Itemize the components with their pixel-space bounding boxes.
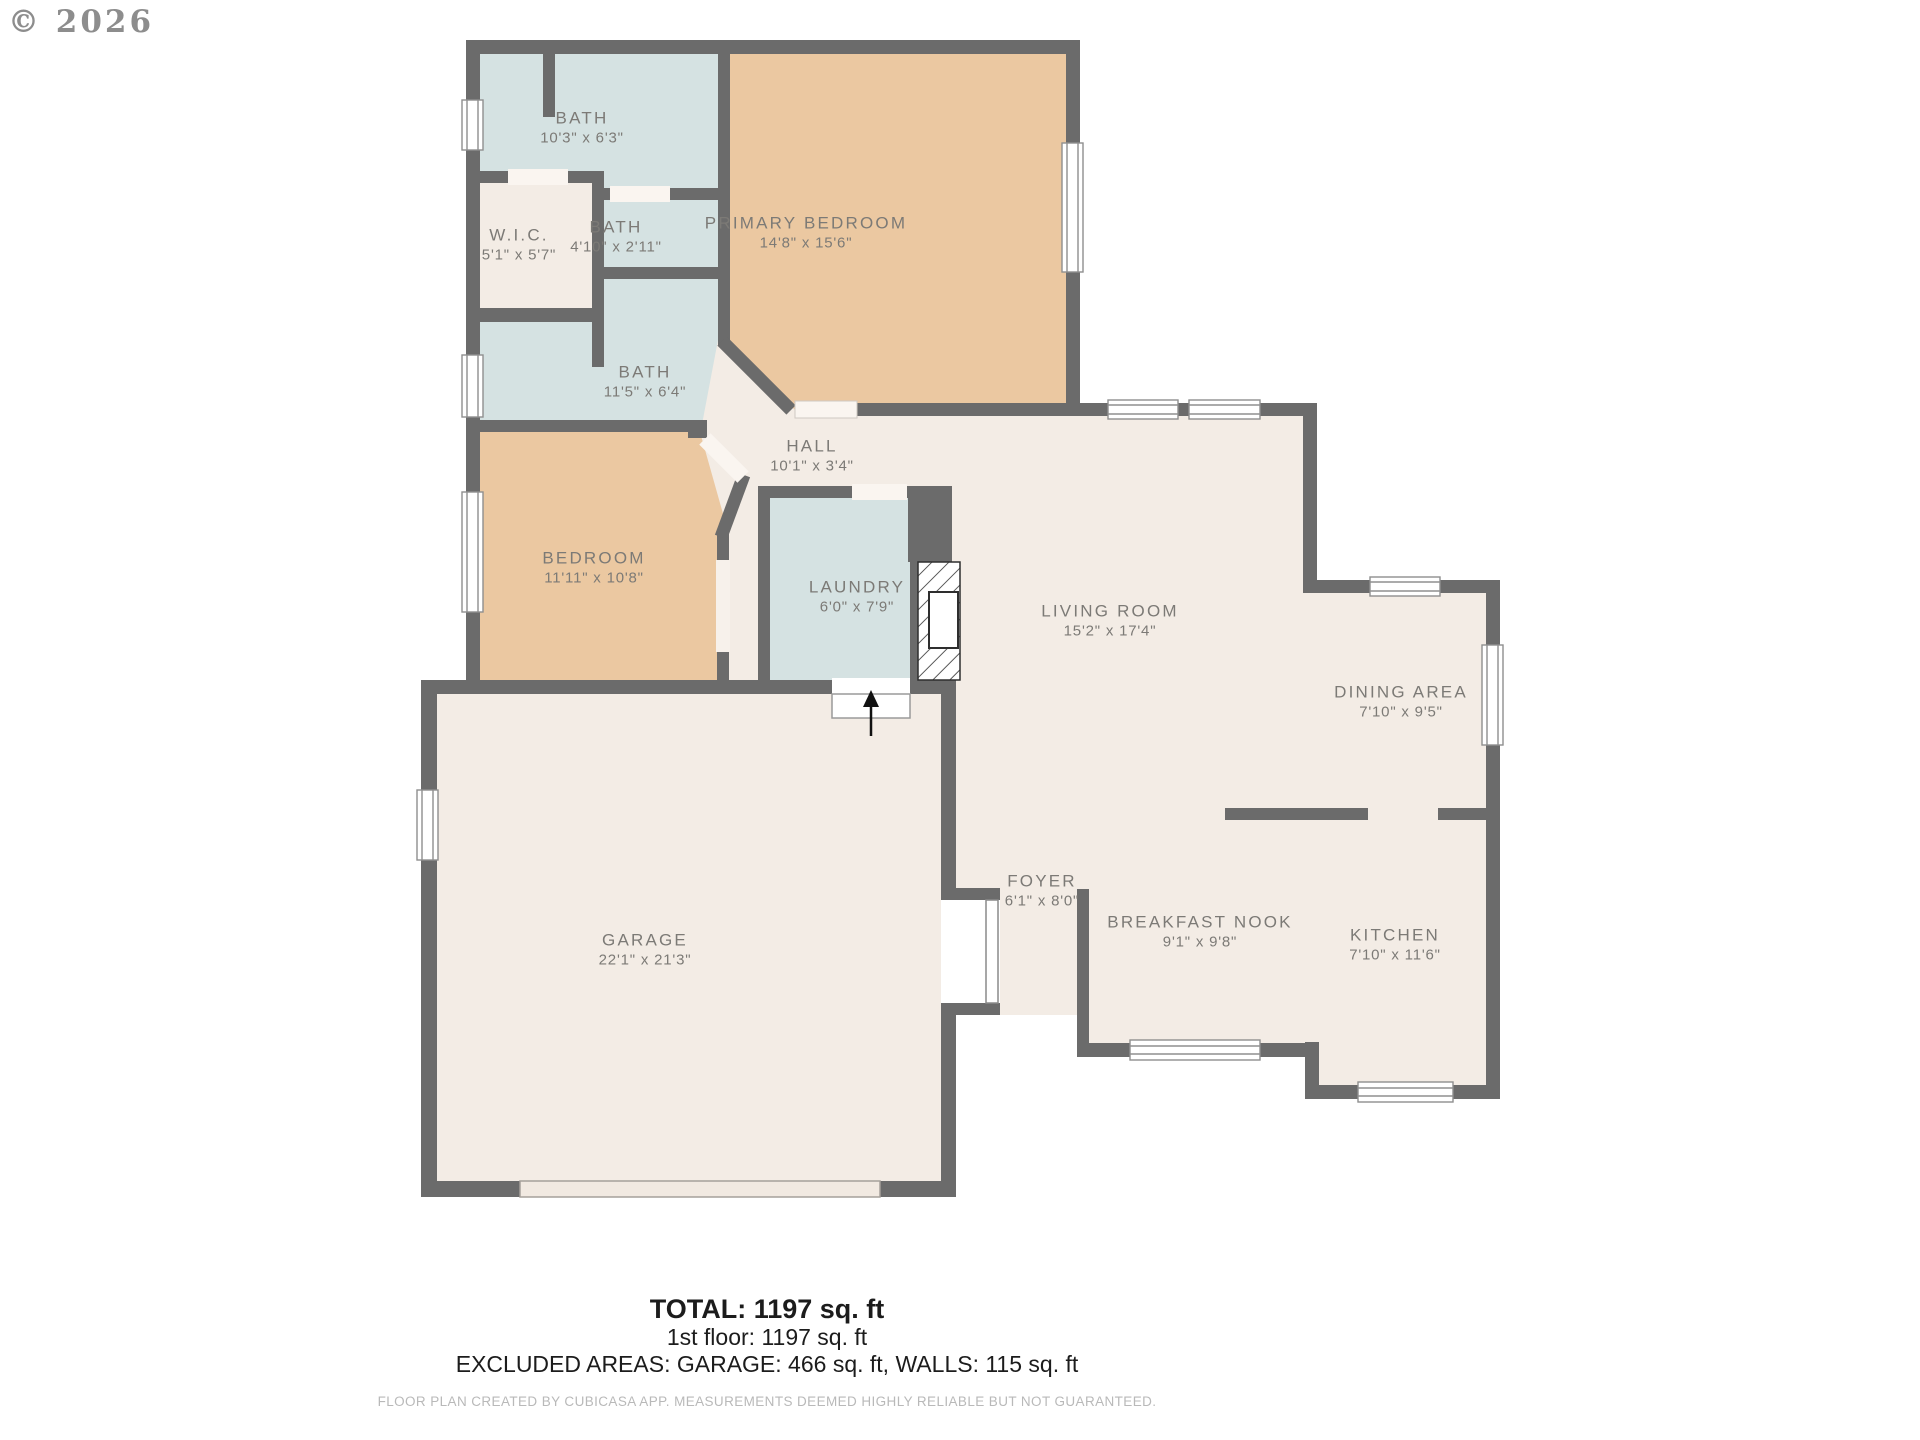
garage-door	[520, 1181, 880, 1197]
floorplan-page: © 2026	[0, 0, 1920, 1440]
area-summary: TOTAL: 1197 sq. ft 1st floor: 1197 sq. f…	[456, 1294, 1079, 1378]
window-primary-right	[1062, 143, 1083, 272]
window-dining-top	[1370, 577, 1440, 596]
window-bath-upper-left	[462, 100, 483, 150]
front-door	[986, 900, 998, 1003]
window-living-top-1	[1108, 400, 1178, 419]
window-living-top-2	[1189, 400, 1260, 419]
floor-area: 1st floor: 1197 sq. ft	[456, 1324, 1079, 1351]
excluded-areas: EXCLUDED AREAS: GARAGE: 466 sq. ft, WALL…	[456, 1351, 1079, 1378]
total-area: TOTAL: 1197 sq. ft	[456, 1294, 1079, 1324]
room-laundry	[758, 486, 922, 694]
window-bedroom-left	[462, 492, 483, 612]
window-garage-left	[417, 790, 438, 860]
room-bedroom	[480, 432, 729, 694]
window-kitchen-bottom	[1358, 1082, 1453, 1102]
disclaimer-text: FLOOR PLAN CREATED BY CUBICASA APP. MEAS…	[378, 1394, 1157, 1409]
fireplace-hatch	[918, 562, 960, 680]
room-primary-bedroom	[730, 54, 1066, 410]
window-bath-mid-left	[462, 355, 483, 417]
window-breakfast-nook-bottom	[1130, 1040, 1260, 1060]
floorplan-drawing	[0, 0, 1920, 1440]
window-dining-right	[1482, 645, 1503, 745]
